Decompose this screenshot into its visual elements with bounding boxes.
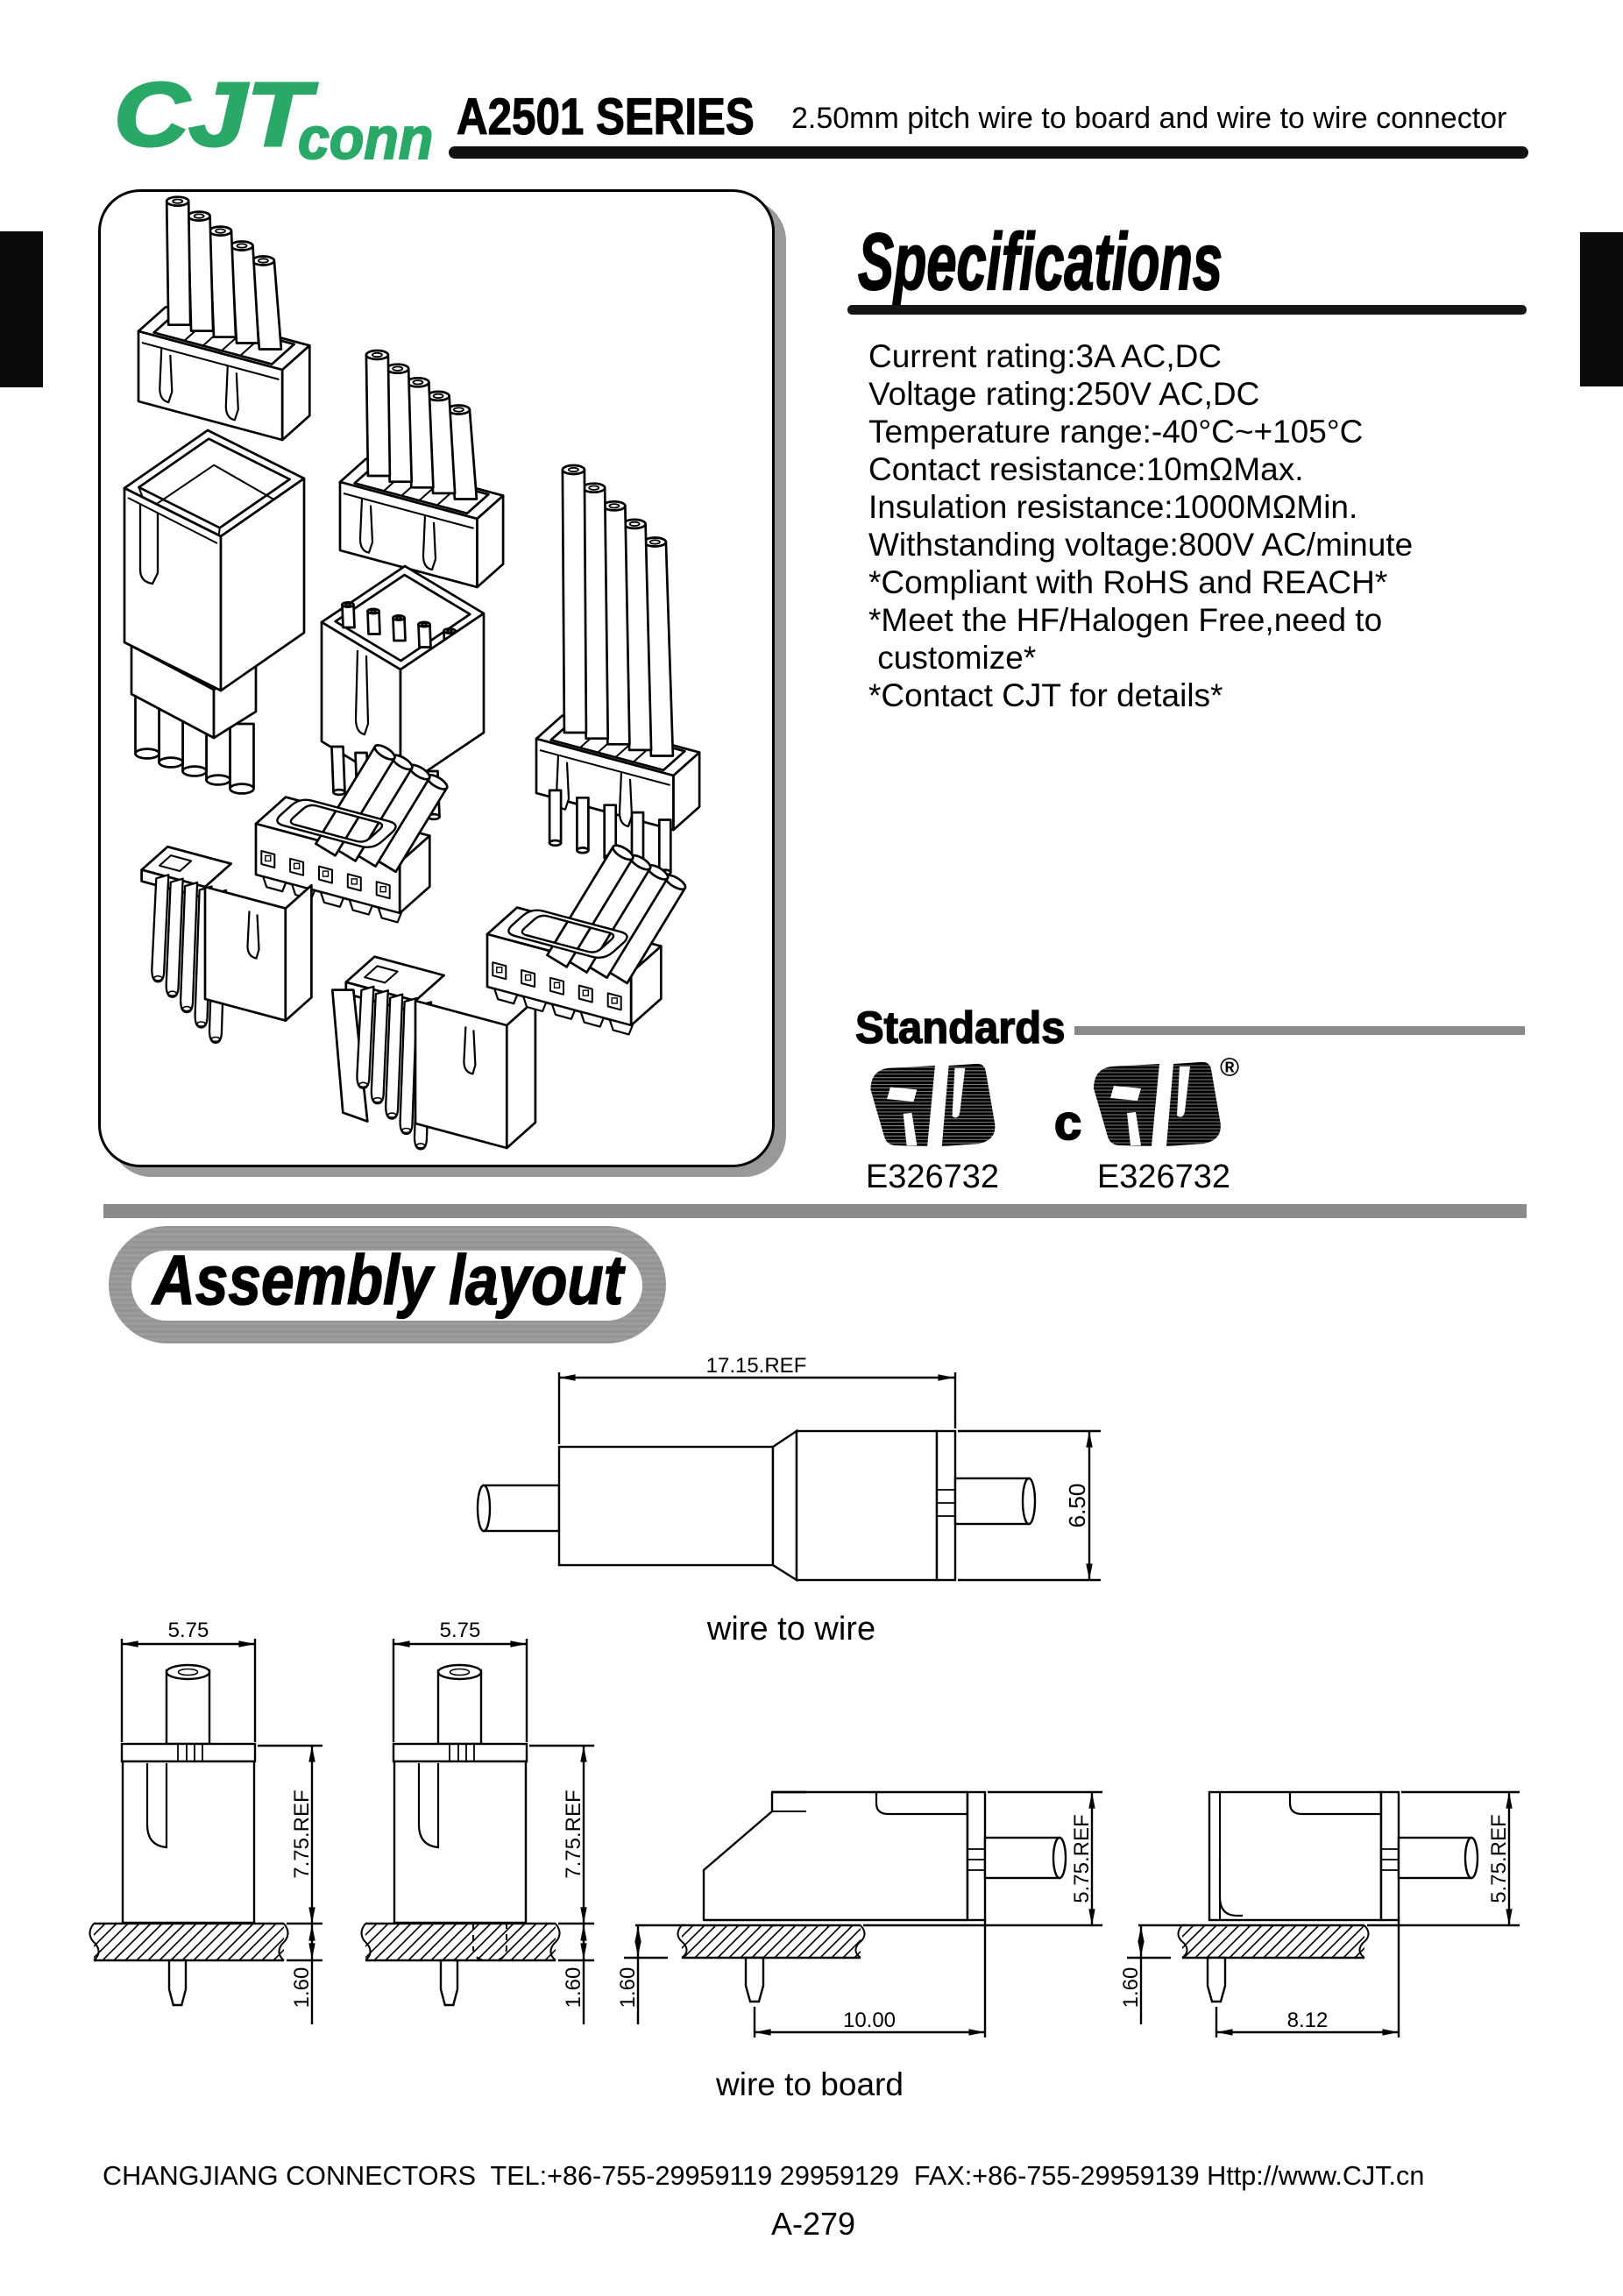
svg-text:8.12: 8.12 bbox=[1287, 2009, 1329, 2032]
svg-text:7.75.REF: 7.75.REF bbox=[290, 1789, 314, 1878]
svg-text:5.75.REF: 5.75.REF bbox=[1070, 1814, 1094, 1903]
svg-text:10.00: 10.00 bbox=[843, 2009, 896, 2032]
svg-text:5.75: 5.75 bbox=[168, 1619, 209, 1642]
svg-text:5.75.REF: 5.75.REF bbox=[1487, 1814, 1511, 1903]
svg-text:17.15.REF: 17.15.REF bbox=[706, 1354, 807, 1378]
svg-text:1.60: 1.60 bbox=[562, 1967, 585, 2009]
svg-text:1.60: 1.60 bbox=[1119, 1967, 1143, 2009]
svg-text:5.75: 5.75 bbox=[440, 1619, 481, 1642]
svg-text:6.50: 6.50 bbox=[1064, 1484, 1090, 1528]
svg-text:1.60: 1.60 bbox=[290, 1967, 314, 2009]
svg-text:1.60: 1.60 bbox=[616, 1967, 640, 2009]
svg-text:7.75.REF: 7.75.REF bbox=[562, 1789, 585, 1878]
